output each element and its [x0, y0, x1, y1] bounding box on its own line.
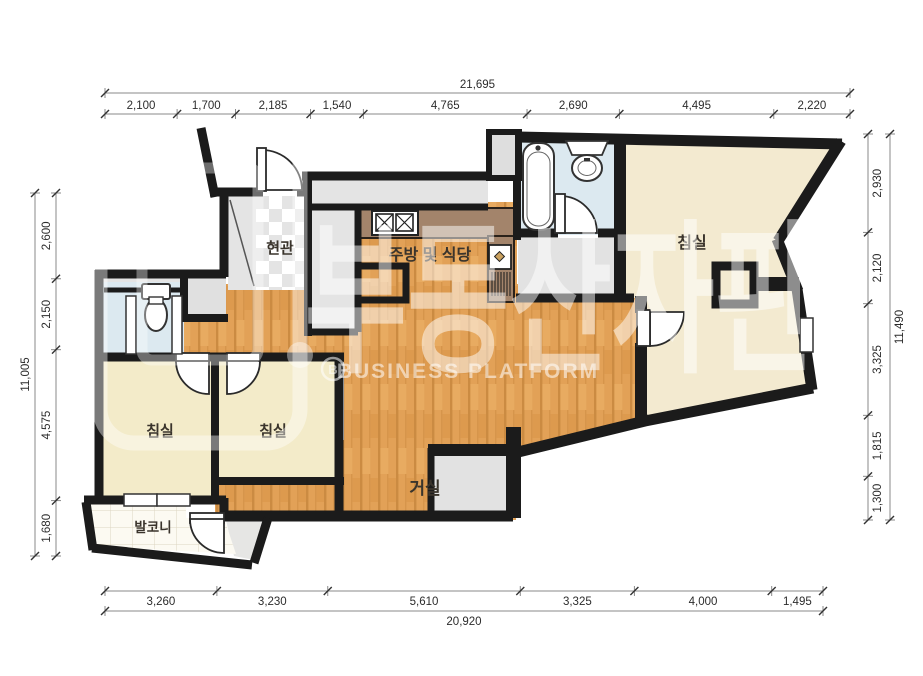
dim-mark: 20,920: [446, 616, 481, 628]
dim-mark: 2,600: [41, 221, 53, 250]
dim-mark: 2,185: [259, 100, 288, 112]
dim-mark: 1,495: [783, 596, 812, 608]
duct-shaft: [492, 135, 515, 175]
dim-mark: 3,325: [872, 345, 884, 374]
bathroom-main-door-leaf: [555, 194, 565, 233]
dim-mark: 2,220: [797, 100, 826, 112]
dim-mark: 4,000: [689, 596, 718, 608]
dim-mark: 2,120: [872, 254, 884, 283]
dim-mark: 21,695: [460, 79, 495, 91]
dress-room-floor: [518, 238, 616, 298]
dim-mark: 2,930: [872, 169, 884, 198]
dimension-bottom: 3,2603,2305,6103,3254,0001,49520,920: [101, 586, 827, 628]
bathtub-faucet: [535, 145, 540, 150]
dim-mark: 4,765: [431, 100, 460, 112]
dim-mark: 1,300: [872, 484, 884, 513]
dim-mark: 4,575: [41, 411, 53, 440]
floor-plan-svg: 현관 주방 및 식당 침실 침실 침실 거실 발코니 부동산자판기 B BUSI…: [0, 0, 923, 676]
dim-mark: 2,100: [127, 100, 156, 112]
dim-mark: 2,690: [559, 100, 588, 112]
dimension-left: 2,6002,1504,5751,68011,005: [20, 189, 61, 560]
dim-mark: 4,495: [682, 100, 711, 112]
dim-mark: 3,325: [563, 596, 592, 608]
entrance-label: 현관: [266, 240, 294, 257]
bedroom-left-label: 침실: [146, 423, 174, 440]
balcony-label: 발코니: [134, 519, 171, 535]
dim-mark: 3,260: [147, 596, 176, 608]
window-bedroom-left-2: [157, 494, 190, 506]
dim-mark: 11,005: [20, 357, 32, 391]
dim-mark: 1,700: [192, 100, 221, 112]
bath-sliding-panel-left: [126, 296, 136, 354]
counter-hatch-icon: [492, 272, 510, 296]
toilet-seat: [149, 297, 163, 304]
dimension-right: 2,9302,1203,3251,8151,30011,490: [863, 130, 906, 524]
dim-mark: 1,815: [872, 431, 884, 460]
dim-mark: 11,490: [894, 310, 906, 344]
utility-band-top: [308, 178, 488, 206]
column-stub-wall: [752, 277, 799, 291]
utility-gray-bottom: [434, 456, 506, 512]
floor-plan-page: 현관 주방 및 식당 침실 침실 침실 거실 발코니 부동산자판기 B BUSI…: [0, 0, 923, 676]
sink-tap: [584, 158, 590, 162]
living-room-label: 거실: [409, 479, 440, 498]
dim-mark: 5,610: [410, 596, 439, 608]
bedroom-middle-label: 침실: [259, 423, 287, 440]
entrance-door-arc: [262, 150, 302, 190]
bedroom-main-label: 침실: [677, 233, 706, 252]
kitchen-label: 주방 및 식당: [389, 245, 472, 264]
wall-step-block: [506, 427, 521, 518]
entrance-door-leaf: [257, 148, 266, 191]
wall-block-bottom-center: [428, 444, 506, 456]
sink-cabinet: [566, 141, 608, 155]
window-bedroom-left-1: [124, 494, 157, 506]
bath-sliding-panel-right: [172, 296, 182, 354]
window-bedroom-main: [800, 318, 813, 352]
bedroom-main-door-leaf: [637, 310, 650, 346]
dimension-top: 2,1001,7002,1851,5404,7652,6904,4952,220…: [101, 79, 854, 119]
utility-kitchen-left: [310, 204, 358, 334]
dim-mark: 2,150: [41, 300, 53, 329]
dim-mark: 3,230: [258, 596, 287, 608]
dim-mark: 1,540: [323, 100, 352, 112]
storage-gray: [184, 276, 226, 320]
column: [716, 266, 754, 304]
dim-mark: 1,680: [41, 514, 53, 543]
